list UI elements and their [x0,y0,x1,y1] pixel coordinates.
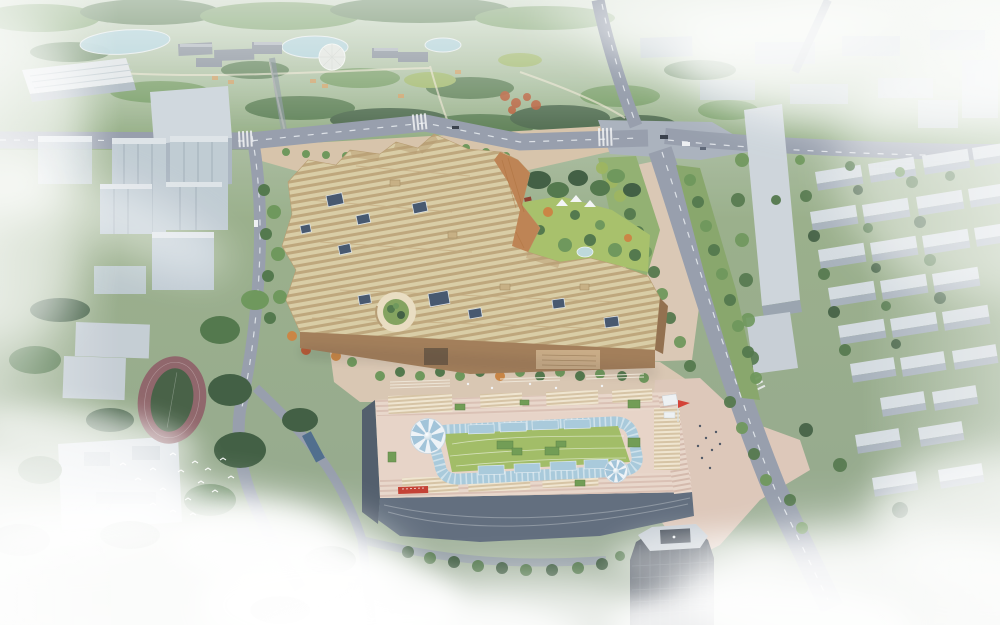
rendering-canvas [0,0,1000,625]
global-tint [0,0,1000,625]
aerial-rendering [0,0,1000,625]
